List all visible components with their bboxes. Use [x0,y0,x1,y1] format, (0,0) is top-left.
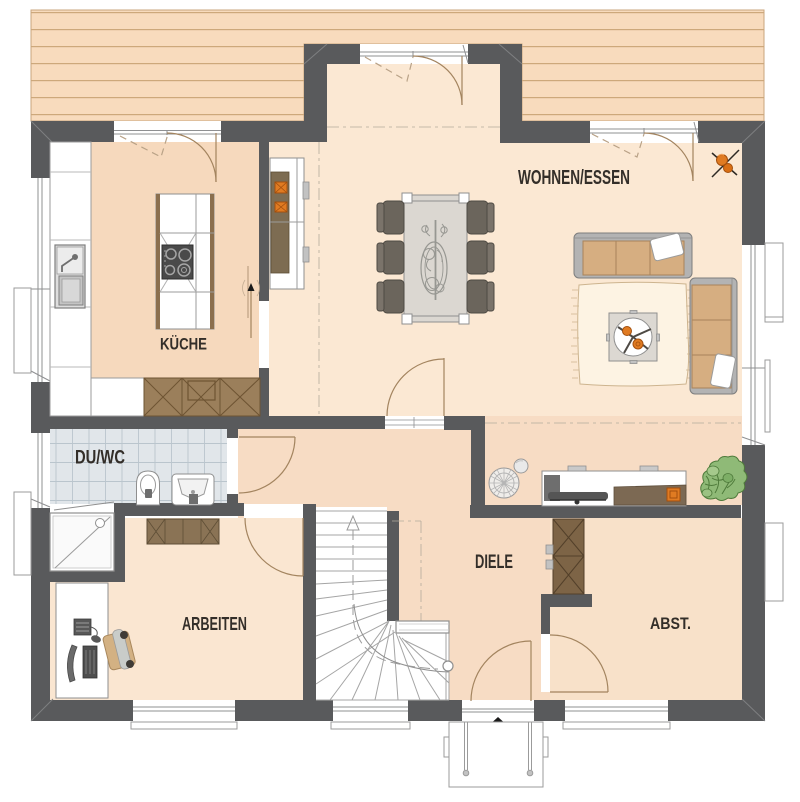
svg-text:DIELE: DIELE [475,551,513,573]
svg-text:WOHNEN/ESSEN: WOHNEN/ESSEN [518,167,630,189]
svg-text:DU/WC: DU/WC [75,448,125,469]
svg-text:ABST.: ABST. [650,614,691,633]
svg-text:ARBEITEN: ARBEITEN [182,614,247,634]
svg-text:KÜCHE: KÜCHE [160,335,207,354]
